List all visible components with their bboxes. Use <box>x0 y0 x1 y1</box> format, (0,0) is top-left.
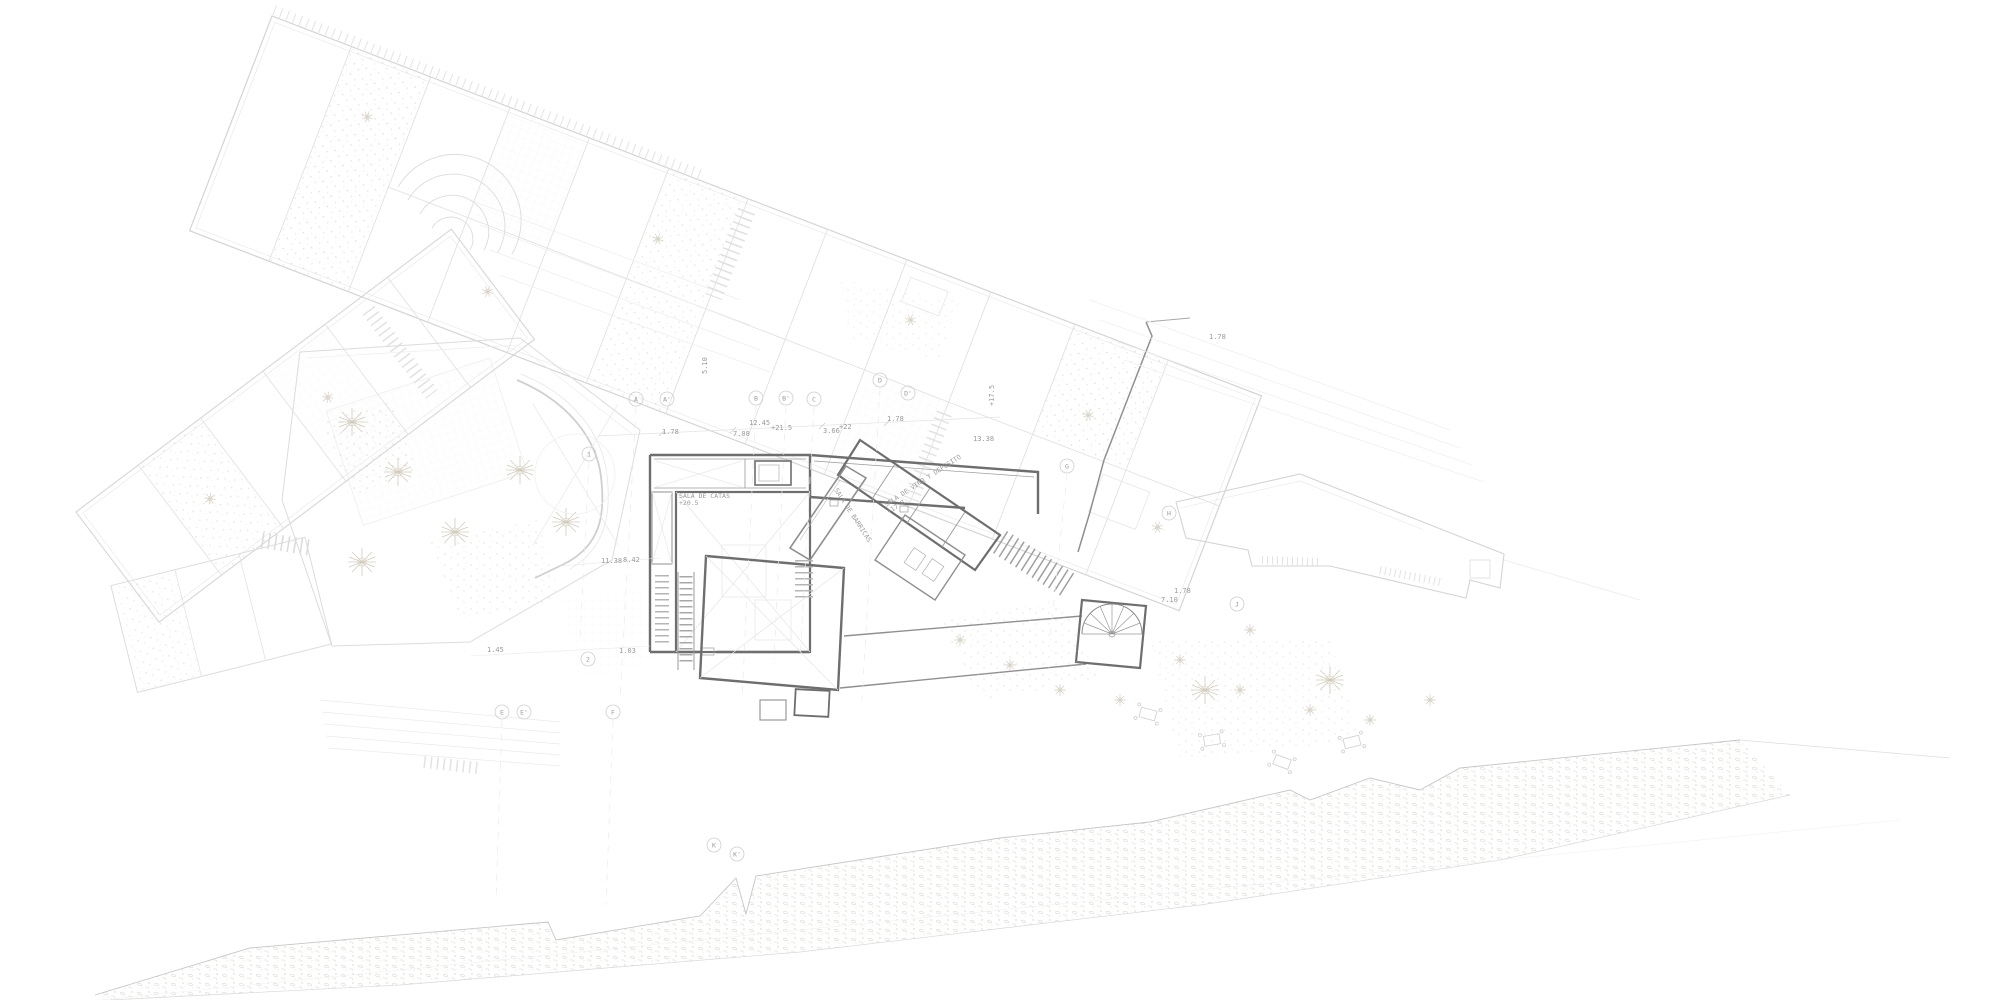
grid-bubble-label: B' <box>782 394 790 402</box>
grid-bubble-label: E <box>500 708 504 716</box>
dimension-text: +21.5 <box>771 424 792 432</box>
grid-bubble-label: H <box>1167 509 1171 517</box>
grid-bubble-label: 1 <box>587 450 591 458</box>
room-label: +20.5 <box>679 499 699 507</box>
grid-bubble-label: K <box>712 841 716 849</box>
site-plan-canvas: AA'BB'CDD'12EE'FGHJKK' 1.787.0812.45+21.… <box>0 0 2000 1000</box>
dimension-text: 13.38 <box>973 435 994 443</box>
grid-bubble-label: E' <box>520 708 528 716</box>
upper-terrace-complex <box>190 10 1264 610</box>
lower-block <box>678 556 844 720</box>
grid-bubble-label: 2 <box>586 655 590 663</box>
site-plan-drawing: AA'BB'CDD'12EE'FGHJKK' 1.787.0812.45+21.… <box>0 0 2000 1000</box>
grid-bubble-label: B <box>754 394 758 402</box>
grid-bubble-label: F <box>611 708 615 716</box>
grid-bubble-label: D' <box>904 389 912 397</box>
grid-bubble-label: C <box>812 395 816 403</box>
dimension-text: 1.78 <box>662 428 679 436</box>
dimension-text: +17.5 <box>988 385 996 406</box>
shoreline-band <box>95 740 1950 1000</box>
hall-block <box>650 455 810 655</box>
grid-bubble-label: K' <box>733 850 741 858</box>
dimension-text: 11.38 <box>601 557 622 565</box>
dimension-text: 5.10 <box>701 357 709 374</box>
rotated-wing <box>790 440 1000 600</box>
dimension-text: 1.78 <box>1209 333 1226 341</box>
dimension-text: 1.78 <box>1174 587 1191 595</box>
grid-bubble-label: G <box>1065 462 1069 470</box>
grid-bubble-label: J <box>1235 600 1239 608</box>
dimension-text: 7.08 <box>733 430 750 438</box>
dimension-text: 3.66 <box>823 427 840 435</box>
dimension-text: 1.03 <box>619 647 636 655</box>
dimension-text: 7.10 <box>1161 596 1178 604</box>
dimension-text: +22 <box>839 423 852 431</box>
grid-bubble-label: A' <box>663 395 671 403</box>
grid-bubble-label: A <box>634 395 638 403</box>
grid-bubble-label: D <box>878 376 882 384</box>
dimension-text: 1.78 <box>887 415 904 423</box>
dimension-text: 1.45 <box>487 646 504 654</box>
right-wing <box>1176 474 1640 600</box>
dimension-text: 8.42 <box>623 556 640 564</box>
dimension-text: 12.45 <box>749 419 770 427</box>
